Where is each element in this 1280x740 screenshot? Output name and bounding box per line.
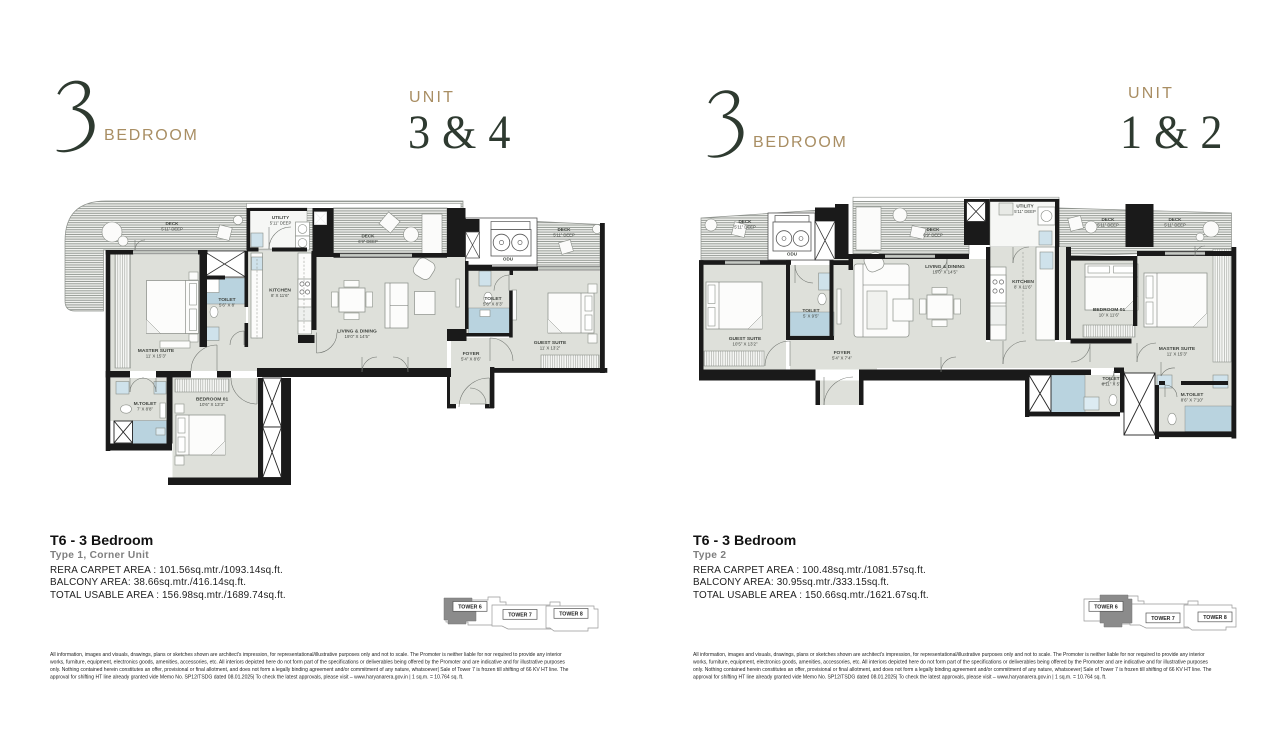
svg-text:TOWER 8: TOWER 8 (1203, 615, 1227, 621)
svg-text:UTILITY: UTILITY (272, 215, 289, 220)
svg-text:8’ X 11’6”: 8’ X 11’6” (271, 293, 290, 298)
svg-text:8’6” X 7’10”: 8’6” X 7’10” (1181, 398, 1204, 403)
svg-text:TOWER 8: TOWER 8 (559, 612, 583, 618)
svg-text:DECK: DECK (165, 221, 179, 226)
svg-text:ODU: ODU (503, 257, 514, 262)
svg-text:approval for shifting HT line: approval for shifting HT line already gr… (693, 675, 1106, 681)
svg-text:DECK: DECK (738, 219, 752, 224)
svg-text:5’11” DEEP: 5’11” DEEP (734, 225, 756, 230)
svg-text:DECK: DECK (361, 234, 375, 239)
svg-text:5’ X 9’5”: 5’ X 9’5” (803, 314, 819, 319)
svg-text:TOWER 6: TOWER 6 (1094, 605, 1118, 611)
svg-text:10’5” X 13’2”: 10’5” X 13’2” (733, 342, 758, 347)
svg-text:5’11” DEEP: 5’11” DEEP (553, 233, 575, 238)
svg-text:TOWER 6: TOWER 6 (458, 605, 482, 611)
svg-text:approval for shifting HT line: approval for shifting HT line already gr… (50, 675, 463, 681)
svg-text:TOWER 7: TOWER 7 (1151, 616, 1175, 622)
svg-text:5’6” X 8’3”: 5’6” X 8’3” (483, 302, 504, 307)
svg-text:DECK: DECK (1168, 217, 1182, 222)
svg-text:11’ X 15’3”: 11’ X 15’3” (146, 354, 167, 359)
svg-text:5’11” DEEP: 5’11” DEEP (1097, 223, 1119, 228)
svg-text:10’6” X 13’3”: 10’6” X 13’3” (200, 402, 225, 407)
svg-text:19’0” X 14’5”: 19’0” X 14’5” (933, 270, 958, 275)
svg-text:TOWER 7: TOWER 7 (508, 613, 532, 619)
svg-text:All information, images and vi: All information, images and visuals, dra… (693, 652, 1205, 658)
svg-text:6’9” DEEP: 6’9” DEEP (923, 233, 943, 238)
svg-text:19’0” X 14’5”: 19’0” X 14’5” (345, 334, 370, 339)
svg-text:UTILITY: UTILITY (1016, 204, 1033, 209)
svg-text:ODU: ODU (787, 252, 798, 257)
svg-text:5’4” X 7’4”: 5’4” X 7’4” (832, 356, 853, 361)
svg-text:5’11” DEEP: 5’11” DEEP (1164, 223, 1186, 228)
svg-text:11’ X 13’2”: 11’ X 13’2” (540, 346, 561, 351)
svg-text:5’6” X 8’: 5’6” X 8’ (219, 303, 235, 308)
svg-text:only. Nothing contained herein: only. Nothing contained herein constitut… (693, 667, 1212, 673)
svg-text:8’ X 11’6”: 8’ X 11’6” (1014, 285, 1033, 290)
svg-text:All information, images and vi: All information, images and visuals, dra… (50, 652, 562, 658)
svg-text:5’11” DEEP: 5’11” DEEP (161, 227, 183, 232)
svg-text:works, furniture, equipment, e: works, furniture, equipment, electronics… (50, 660, 565, 666)
svg-text:11’ X 15’3”: 11’ X 15’3” (1167, 352, 1188, 357)
svg-text:5’4” X 8’6”: 5’4” X 8’6” (461, 357, 482, 362)
svg-text:5’11” DEEP: 5’11” DEEP (270, 221, 292, 226)
svg-text:8’11” X 5’: 8’11” X 5’ (1102, 382, 1120, 387)
svg-text:DECK: DECK (557, 227, 571, 232)
svg-text:6’9” DEEP: 6’9” DEEP (358, 239, 378, 244)
svg-text:DECK: DECK (1101, 217, 1115, 222)
svg-text:5’11” DEEP: 5’11” DEEP (1014, 209, 1036, 214)
svg-text:DECK: DECK (926, 227, 940, 232)
svg-text:works, furniture, equipment, e: works, furniture, equipment, electronics… (693, 660, 1208, 666)
svg-text:7’ X 8’8”: 7’ X 8’8” (137, 407, 153, 412)
svg-text:only. Nothing contained herein: only. Nothing contained herein constitut… (50, 667, 569, 673)
svg-text:10’ X 11’6”: 10’ X 11’6” (1099, 313, 1120, 318)
